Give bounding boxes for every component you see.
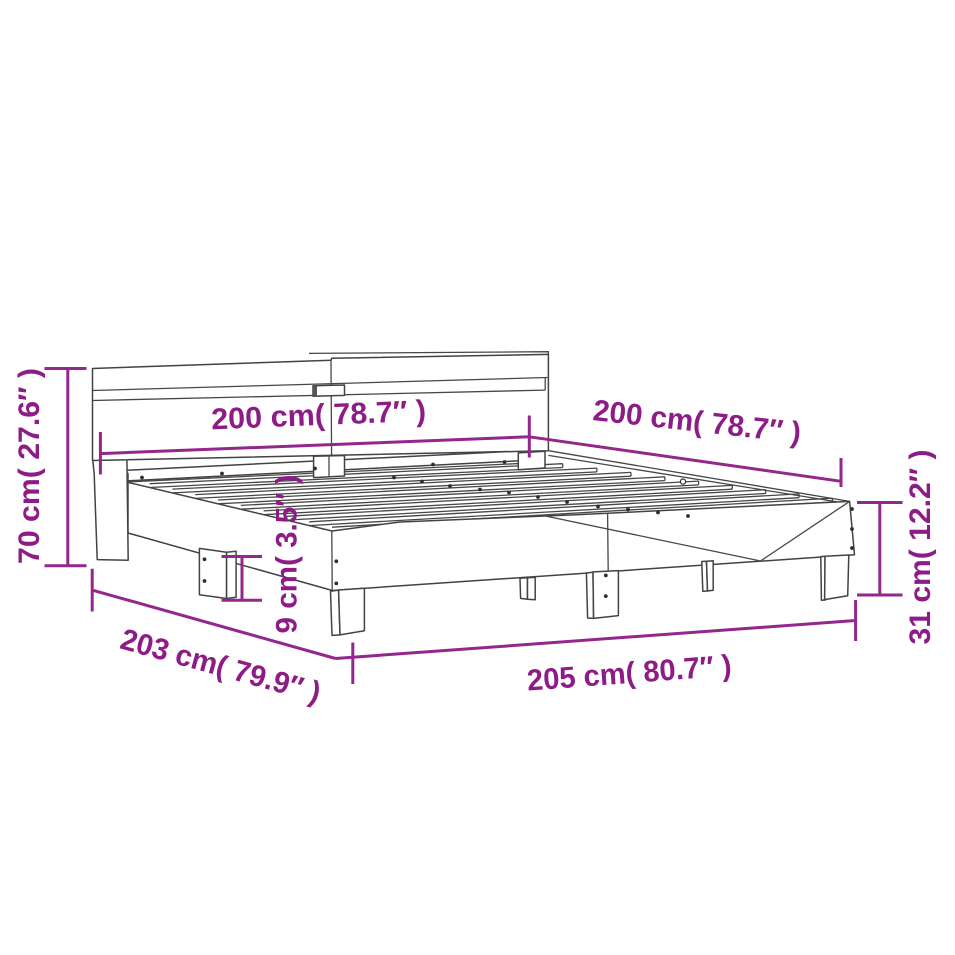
svg-text:31 cm( 12.2″ ): 31 cm( 12.2″ ) [904, 450, 937, 645]
svg-text:70 cm( 27.6″ ): 70 cm( 27.6″ ) [13, 368, 46, 564]
svg-text:9 cm( 3.5″ ): 9 cm( 3.5″ ) [271, 475, 304, 634]
